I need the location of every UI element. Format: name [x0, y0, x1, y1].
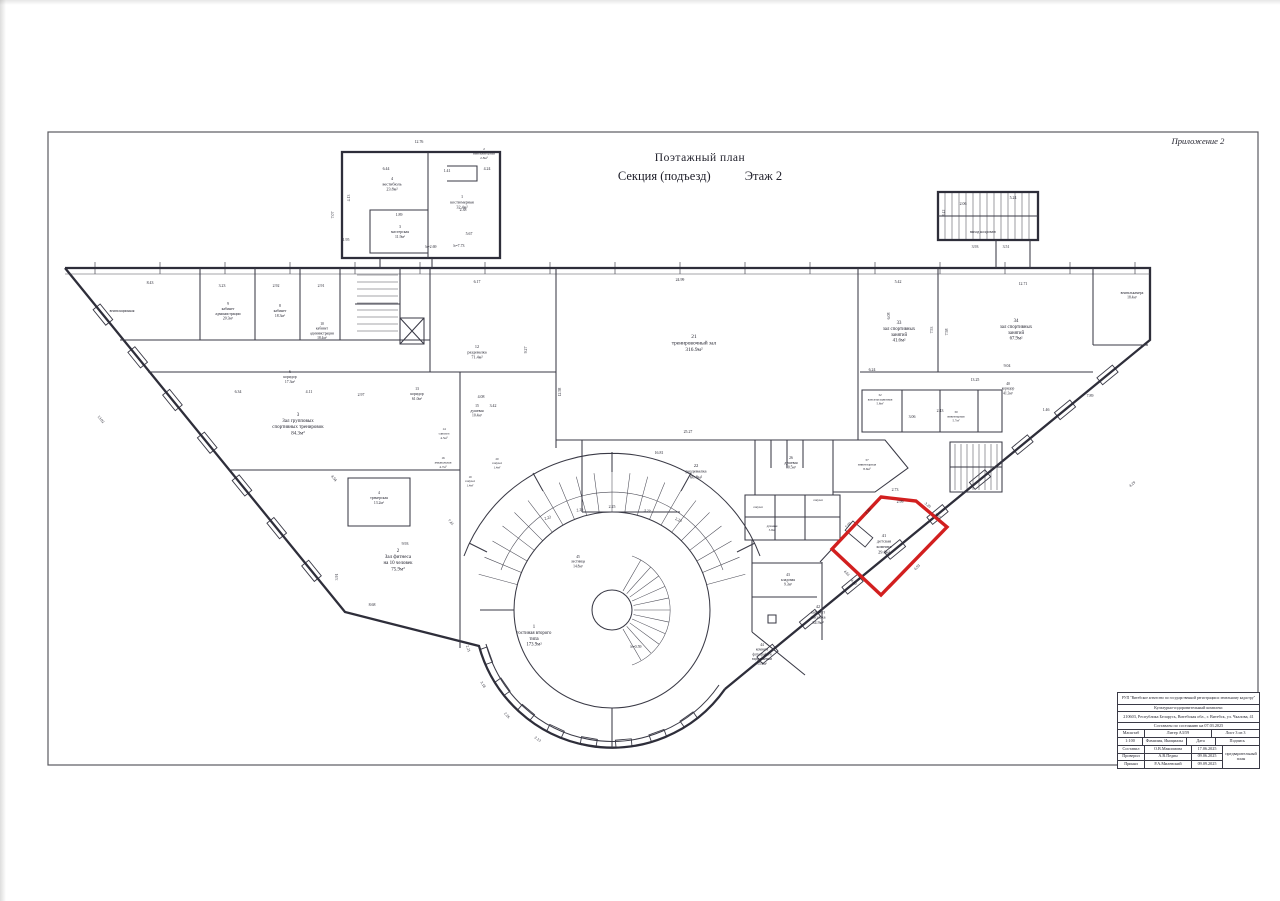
dimension-label: 3.42: [490, 404, 497, 408]
section-label: Секция (подъезд): [618, 169, 711, 184]
dimension-label: 12.58: [558, 388, 562, 397]
dimension-label: 13.25: [971, 378, 980, 382]
dimension-label: 8.43: [147, 281, 154, 285]
window-blocks: [93, 304, 1118, 748]
stamp-note: предварительный план: [1222, 746, 1259, 768]
stamp-date: 09.09.2025: [1191, 761, 1222, 768]
stamp-fio-header: Фамилия, Инициалы: [1142, 738, 1186, 745]
dimension-label: 2.25: [609, 505, 616, 509]
atrium-center-column: [592, 590, 632, 630]
room-label: 16умывальная4.7м²: [435, 456, 452, 469]
dimension-label: 4.11: [306, 390, 313, 394]
room-label: 8кабинет18.3м²: [274, 304, 287, 318]
dimension-label: 8.68: [369, 603, 376, 607]
room-label: 30инвентарная5.7м²: [947, 410, 965, 423]
dimension-label: 3.18: [479, 681, 486, 689]
dimension-label: 6.08: [887, 313, 891, 320]
dimension-label: 7.53: [930, 327, 934, 334]
dimension-label: 7.89: [1087, 394, 1094, 398]
room-label: вентилькамера18.4м²: [1121, 291, 1144, 300]
room-label: 43кладовая9.3м²: [781, 573, 795, 587]
floor-plan-document: { "page": { "appendix": "Приложение 2", …: [0, 0, 1280, 901]
dimension-label: 5.24: [1010, 196, 1017, 200]
dimension-label: 4.29: [1128, 480, 1136, 487]
stamp-scale: 1:100: [1118, 738, 1142, 745]
dimension-label: 9.04: [1004, 364, 1011, 368]
room-label: 41детскаякомната29.0м²: [877, 533, 892, 555]
dimension-label: 2.26: [503, 711, 511, 719]
dimension-label: h=7.73: [454, 244, 465, 248]
dimension-label: 4.13: [347, 195, 351, 202]
dimension-label: 2.21: [465, 645, 471, 653]
stamp-sheet: Лист 3 из 3: [1211, 730, 1259, 737]
dimension-label: 7.58: [945, 329, 949, 336]
dimension-label: 3.91: [335, 574, 339, 581]
room-label: 21тренировочный зал316.9м²: [672, 334, 717, 353]
stamp-date-header: Дата: [1186, 738, 1215, 745]
room-label: 45лестница14.8м²: [571, 555, 585, 568]
room-label: 34зал спортивныхзанятий67.9м²: [1000, 319, 1033, 342]
room-label: 3Зал групповыхспортивных тренировок84.3м…: [272, 413, 324, 436]
room-label: 20санузел1.4м²: [492, 457, 503, 469]
stamp-complex: Культурно-оздоровительный комплекс: [1118, 705, 1259, 711]
room-label: вентиляционная: [110, 309, 135, 313]
room-label: 32консультационная5.8м²: [868, 393, 893, 406]
room-label: 14санузел4.5м²: [439, 427, 450, 440]
floor-plan-drawing: 4вестибюль23.8м²2вентиляторная2.8м²1кост…: [0, 0, 1280, 901]
room-label: 12раздевалка71.4м²: [467, 344, 486, 360]
dimension-label: b=2.69: [426, 245, 437, 249]
dimension-label: 2.38: [460, 208, 467, 212]
room-label: душевая3.9м²: [767, 524, 778, 532]
dimension-label: 9.93: [402, 542, 409, 546]
dimension-label: 3.06: [909, 415, 916, 419]
roof-stair-partitions: [938, 216, 1038, 268]
dimension-label: 7.07: [331, 212, 335, 219]
dimension-label: 4.24: [484, 167, 491, 171]
room-label: 3мастерская11.9м²: [391, 225, 409, 239]
appendix-note: Приложение 2: [1148, 136, 1248, 146]
dimension-label: 12.71: [1019, 282, 1028, 286]
dimension-label: 2.73: [892, 488, 899, 492]
dimension-label: 2.99: [897, 500, 904, 504]
dimension-label: 2.91: [318, 284, 325, 288]
dimension-label: 8.42: [942, 210, 946, 217]
dimension-label: 6.44: [383, 167, 390, 171]
room-label: 40коридор41.3м²: [1002, 382, 1015, 395]
room-label: санузел: [813, 498, 823, 502]
dimension-label: 13.02: [96, 415, 105, 424]
floor-label: Этаж 2: [745, 169, 782, 184]
annex-block-outline: [342, 152, 500, 258]
dimension-label: 2.43: [937, 409, 944, 413]
dimension-label: 6.24: [869, 368, 876, 372]
room-label: 9кабинетадминистрации20.3м²: [215, 302, 240, 321]
title-block: РУП "Витебское агентство по государствен…: [1117, 692, 1260, 769]
room-label: 37инвентарная8.6м²: [858, 458, 877, 471]
interior-walls: [120, 268, 1148, 675]
dimension-label: 1.95: [343, 238, 350, 242]
room-label: 26душевая10.5м²: [784, 456, 798, 470]
room-label: 33зал спортивныхзанятий41.6м²: [883, 321, 916, 344]
dimension-label: 3.27: [643, 508, 650, 513]
dimension-label: 9.27: [524, 347, 528, 354]
dimension-label: 3.93: [972, 245, 979, 249]
room-label: 1гостиная второготипа173.9м²: [517, 625, 552, 648]
room-label: 19санузел1.4м²: [465, 475, 476, 487]
room-label: выход на кровлю: [970, 230, 996, 234]
stamp-scale-label: Масштаб: [1118, 730, 1144, 737]
room-label: 4тренерская13.2м²: [370, 491, 388, 505]
page-title: Поэтажный план: [560, 152, 840, 164]
dimension-label: 2.06: [960, 202, 967, 206]
dimension-label: 24.99: [676, 278, 685, 282]
annex-stairwell: [355, 268, 400, 340]
dimension-label: 3.51: [1003, 245, 1010, 249]
stamp-liter: Литер А3/59: [1144, 730, 1211, 737]
stamp-name: Р.А.Милевский: [1144, 761, 1191, 768]
dimension-label: 2.22: [544, 515, 552, 521]
room-label: 2вентиляторная2.8м²: [473, 147, 495, 160]
dimension-label: 2.13: [534, 736, 542, 743]
room-label: 13коридор61.0м²: [410, 387, 423, 401]
sheet-frame: [48, 132, 1258, 765]
stamp-role: Принял: [1118, 761, 1144, 768]
dimension-label: 5.42: [895, 280, 902, 284]
stamp-address: 210603, Республика Беларусь, Витебская о…: [1118, 712, 1259, 722]
room-label: 4вестибюль23.8м²: [383, 176, 402, 192]
room-label: 15душевая10.4м²: [470, 404, 484, 418]
stamp-sign-header: Подпись: [1215, 738, 1259, 745]
dimension-label: 2.92: [273, 284, 280, 288]
dimension-label: 12.76: [415, 140, 424, 144]
dimension-label: 4.08: [478, 395, 485, 399]
dimension-label: 6.34: [235, 390, 242, 394]
dimension-label: 6.93: [913, 563, 921, 571]
dimension-label: 2.97: [358, 393, 365, 397]
dimension-label: 3.23: [219, 284, 226, 288]
dimension-label: 5.67: [466, 232, 473, 236]
dimension-label: 4.54: [330, 474, 337, 482]
dimension-label: 1.46: [1043, 408, 1050, 412]
stamp-asof: Составлен по состоянию на 07.03.2025: [1118, 723, 1259, 729]
dimension-label: 1.41: [444, 169, 451, 173]
dimension-label: 16.81: [655, 451, 664, 455]
dimension-label: h=0.59: [631, 645, 642, 649]
stamp-organization: РУП "Витебское агентство по государствен…: [1118, 693, 1259, 704]
room-label: 2Зал фитнесана 10 человек75.9м²: [383, 549, 413, 572]
dimension-label: 1.89: [396, 213, 403, 217]
room-label: 10кабинетадминистрации18.4м²: [310, 322, 334, 340]
page-subtitle: Секция (подъезд) Этаж 2: [530, 169, 870, 184]
dimension-label: 7.41: [447, 518, 455, 526]
room-label: санузел: [753, 505, 763, 509]
dimension-label: 4.61: [843, 569, 851, 577]
dimension-label: 25.27: [684, 430, 693, 434]
atrium-inner-ring: [514, 512, 710, 708]
dimension-label: 2.23: [674, 517, 682, 523]
room-labels: 4вестибюль23.8м²2вентиляторная2.8м²1кост…: [110, 147, 1144, 666]
dimension-label: 6.17: [474, 280, 481, 284]
